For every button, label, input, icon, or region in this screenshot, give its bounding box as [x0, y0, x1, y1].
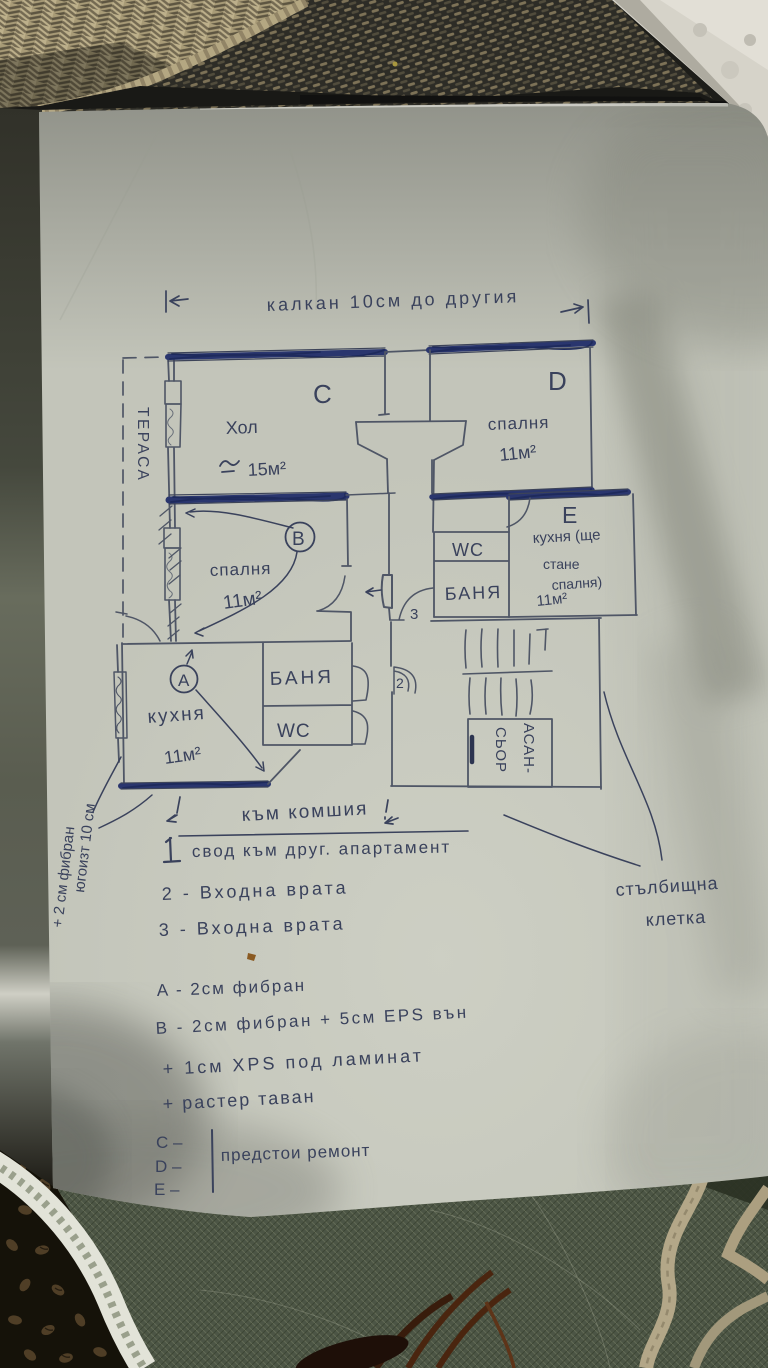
svg-text:11м²: 11м² [536, 590, 568, 610]
svg-text:кухня (ще: кухня (ще [532, 526, 601, 547]
svg-text:C: C [313, 379, 332, 409]
svg-text:спалня: спалня [209, 559, 271, 580]
svg-text:спалня: спалня [487, 413, 549, 434]
svg-text:БАНЯ: БАНЯ [444, 582, 502, 604]
svg-text:ТЕРАСА: ТЕРАСА [134, 407, 151, 482]
svg-text:WC: WC [452, 540, 484, 560]
svg-text:15м²: 15м² [247, 458, 286, 480]
svg-text:WC: WC [277, 721, 311, 742]
svg-text:E: E [562, 502, 577, 528]
svg-text:АСАН-: АСАН- [520, 723, 537, 774]
svg-text:Хол: Хол [225, 417, 258, 438]
svg-text:СЬОР: СЬОР [492, 727, 509, 773]
svg-text:E –: E – [154, 1180, 180, 1199]
svg-text:B: B [292, 529, 305, 550]
svg-text:11м²: 11м² [498, 441, 537, 465]
svg-text:клетка: клетка [645, 907, 706, 930]
svg-text:C –: C – [156, 1133, 183, 1152]
svg-text:3: 3 [410, 606, 418, 623]
svg-text:2: 2 [396, 675, 404, 691]
svg-text:A: A [178, 671, 190, 690]
svg-text:стане: стане [543, 556, 580, 572]
svg-text:D –: D – [155, 1157, 182, 1176]
svg-text:БАНЯ: БАНЯ [269, 667, 334, 690]
svg-text:D: D [548, 366, 567, 396]
svg-text:кухня: кухня [147, 703, 207, 728]
